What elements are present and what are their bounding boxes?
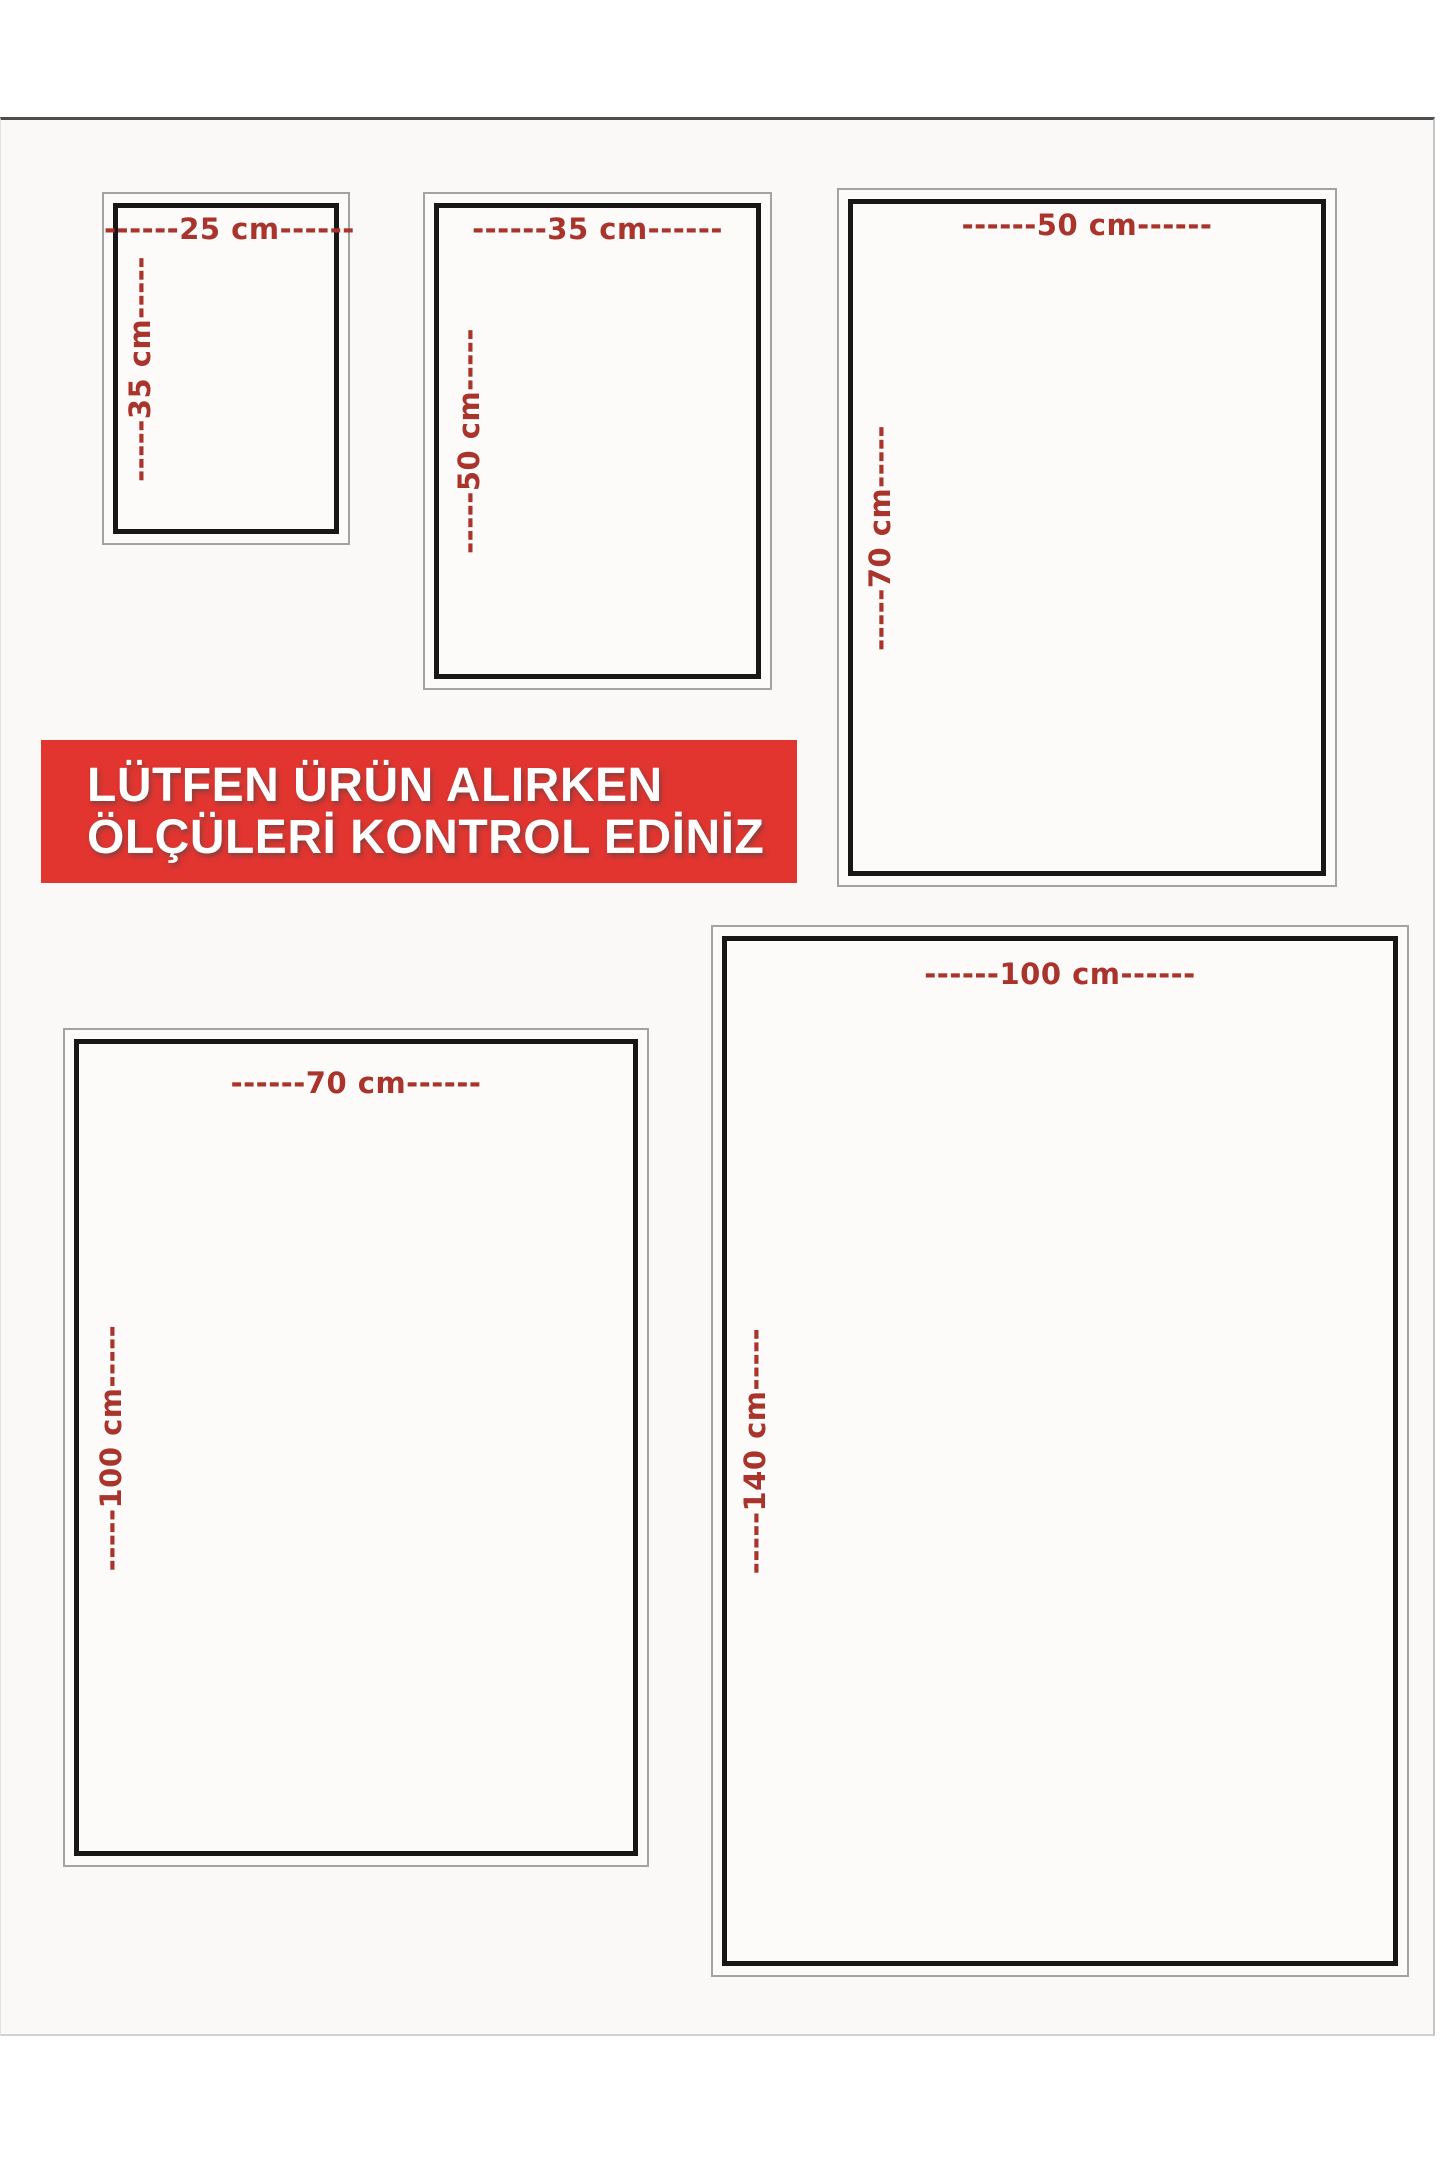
- size-box-70x100-frame: [74, 1039, 638, 1856]
- size-box-100x140-frame: [722, 936, 1398, 1966]
- height-dimension-label: -----70 cm-----: [863, 425, 897, 651]
- size-box-70x100: ------70 cm------ -----100 cm-----: [63, 1028, 649, 1867]
- width-dimension-label: ------100 cm------: [713, 957, 1407, 991]
- warning-banner: LÜTFEN ÜRÜN ALIRKEN ÖLÇÜLERİ KONTROL EDİ…: [41, 740, 797, 883]
- height-dimension-label: -----35 cm-----: [123, 256, 157, 482]
- height-dimension-label: -----100 cm-----: [94, 1324, 128, 1570]
- size-box-25x35: ------25 cm------ -----35 cm-----: [102, 192, 350, 545]
- width-dimension-label: ------50 cm------: [839, 208, 1335, 242]
- size-guide-image: ------25 cm------ -----35 cm----- ------…: [0, 0, 1440, 2160]
- height-dimension-label: -----140 cm-----: [738, 1328, 772, 1574]
- size-box-100x140: ------100 cm------ -----140 cm-----: [711, 925, 1409, 1977]
- size-box-35x50: ------35 cm------ -----50 cm-----: [423, 192, 772, 690]
- size-box-50x70: ------50 cm------ -----70 cm-----: [837, 188, 1337, 887]
- warning-banner-line2: ÖLÇÜLERİ KONTROL EDİNİZ: [87, 812, 797, 864]
- width-dimension-label: ------25 cm------: [104, 212, 348, 246]
- size-box-50x70-frame: [848, 199, 1326, 876]
- width-dimension-label: ------35 cm------: [425, 212, 770, 246]
- width-dimension-label: ------70 cm------: [65, 1066, 647, 1100]
- height-dimension-label: -----50 cm-----: [452, 328, 486, 554]
- warning-banner-line1: LÜTFEN ÜRÜN ALIRKEN: [87, 760, 797, 812]
